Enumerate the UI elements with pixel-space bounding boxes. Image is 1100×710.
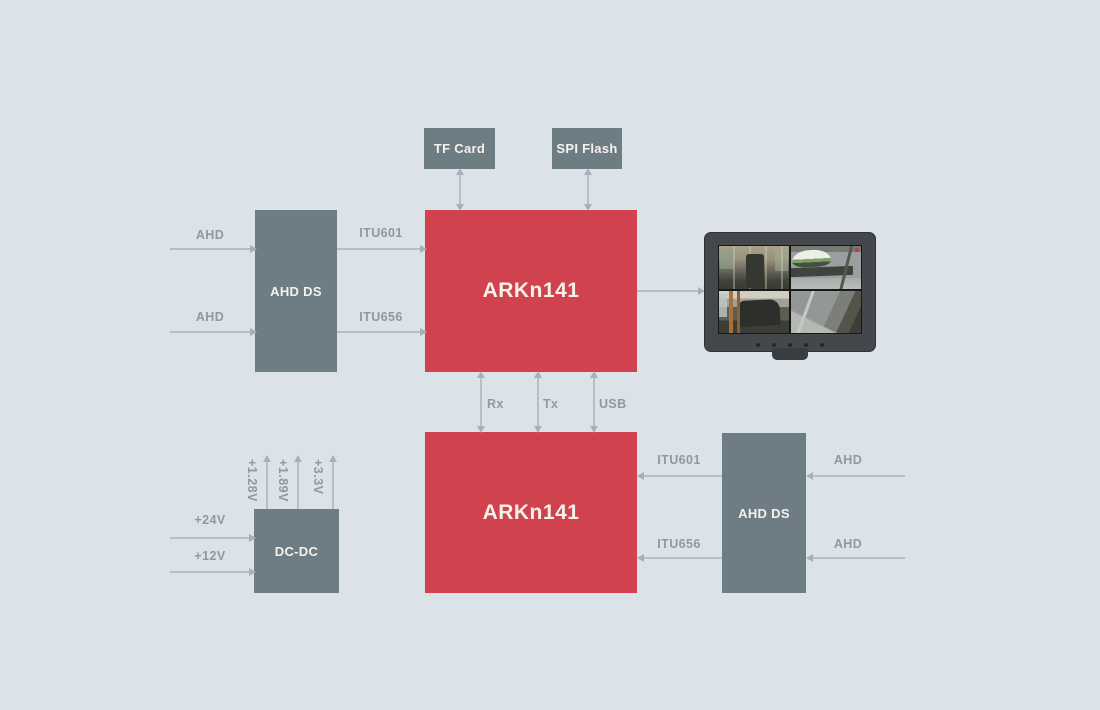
ahd-ds-left-block: AHD DS — [255, 210, 337, 372]
label-rx: Rx — [487, 397, 504, 412]
connector-ahd-right-2 — [808, 557, 905, 559]
label-ahd-right-1: AHD — [834, 453, 862, 468]
connector-display-out — [637, 290, 703, 292]
connector-tx — [537, 373, 539, 431]
monitor-button-dot — [820, 343, 824, 347]
connector-usb — [593, 373, 595, 431]
label-ahd-left-2: AHD — [196, 310, 224, 325]
label-itu601-left: ITU601 — [359, 226, 402, 241]
block-diagram-canvas: TF Card SPI Flash AHD DS ARKn141 ARKn141… — [0, 0, 1100, 710]
monitor-stand — [772, 348, 808, 360]
monitor-buttons — [756, 343, 824, 347]
quad-monitor-image — [704, 232, 876, 352]
driver-silhouette — [746, 254, 764, 289]
monitor-button-dot — [788, 343, 792, 347]
label-tx: Tx — [543, 397, 558, 412]
connector-tf-card — [459, 170, 461, 209]
record-indicator-dot — [855, 248, 859, 252]
connector-rx — [480, 373, 482, 431]
camera-feed-bus-cabin — [719, 291, 789, 334]
connector-ahd-left-2 — [170, 331, 255, 333]
connector-ahd-right-1 — [808, 475, 905, 477]
monitor-screen — [718, 245, 862, 334]
label-rail-1v89: +1.89V — [275, 459, 290, 502]
pavement — [791, 278, 861, 288]
cabin-handrail-1 — [729, 291, 733, 334]
connector-rail-3v3 — [332, 457, 334, 509]
connector-itu656-right — [639, 557, 722, 559]
soc-bottom-block: ARKn141 — [425, 432, 637, 593]
connector-12v — [170, 571, 254, 573]
label-ahd-right-2: AHD — [834, 537, 862, 552]
monitor-button-dot — [756, 343, 760, 347]
connector-itu601-left — [337, 248, 425, 250]
label-itu656-right: ITU656 — [657, 537, 700, 552]
label-rail-3v3: +3.3V — [310, 459, 325, 495]
spi-flash-block: SPI Flash — [552, 128, 622, 169]
ahd-ds-right-block: AHD DS — [722, 433, 806, 593]
label-itu656-left: ITU656 — [359, 310, 402, 325]
label-itu601-right: ITU601 — [657, 453, 700, 468]
label-24v: +24V — [194, 513, 225, 528]
dc-dc-block: DC-DC — [254, 509, 339, 593]
monitor-button-dot — [804, 343, 808, 347]
connector-itu601-right — [639, 475, 722, 477]
monitor-button-dot — [772, 343, 776, 347]
cabin-window — [719, 294, 727, 317]
label-12v: +12V — [194, 549, 225, 564]
tf-card-block: TF Card — [424, 128, 495, 169]
connector-rail-1v28 — [266, 457, 268, 509]
connector-ahd-left-1 — [170, 248, 255, 250]
cabin-seats — [738, 299, 780, 327]
connector-rail-1v89 — [297, 457, 299, 509]
connector-spi-flash — [587, 170, 589, 209]
soc-top-block: ARKn141 — [425, 210, 637, 372]
connector-24v — [170, 537, 254, 539]
bus-roof — [791, 249, 831, 268]
label-ahd-left-1: AHD — [196, 228, 224, 243]
connector-itu656-left — [337, 331, 425, 333]
label-rail-1v28: +1.28V — [244, 459, 259, 502]
camera-feed-street-top — [791, 246, 861, 289]
camera-feed-road — [791, 291, 861, 334]
cabin-handrail-2 — [737, 291, 740, 334]
label-usb: USB — [599, 397, 627, 412]
camera-feed-bus-front — [719, 246, 789, 289]
